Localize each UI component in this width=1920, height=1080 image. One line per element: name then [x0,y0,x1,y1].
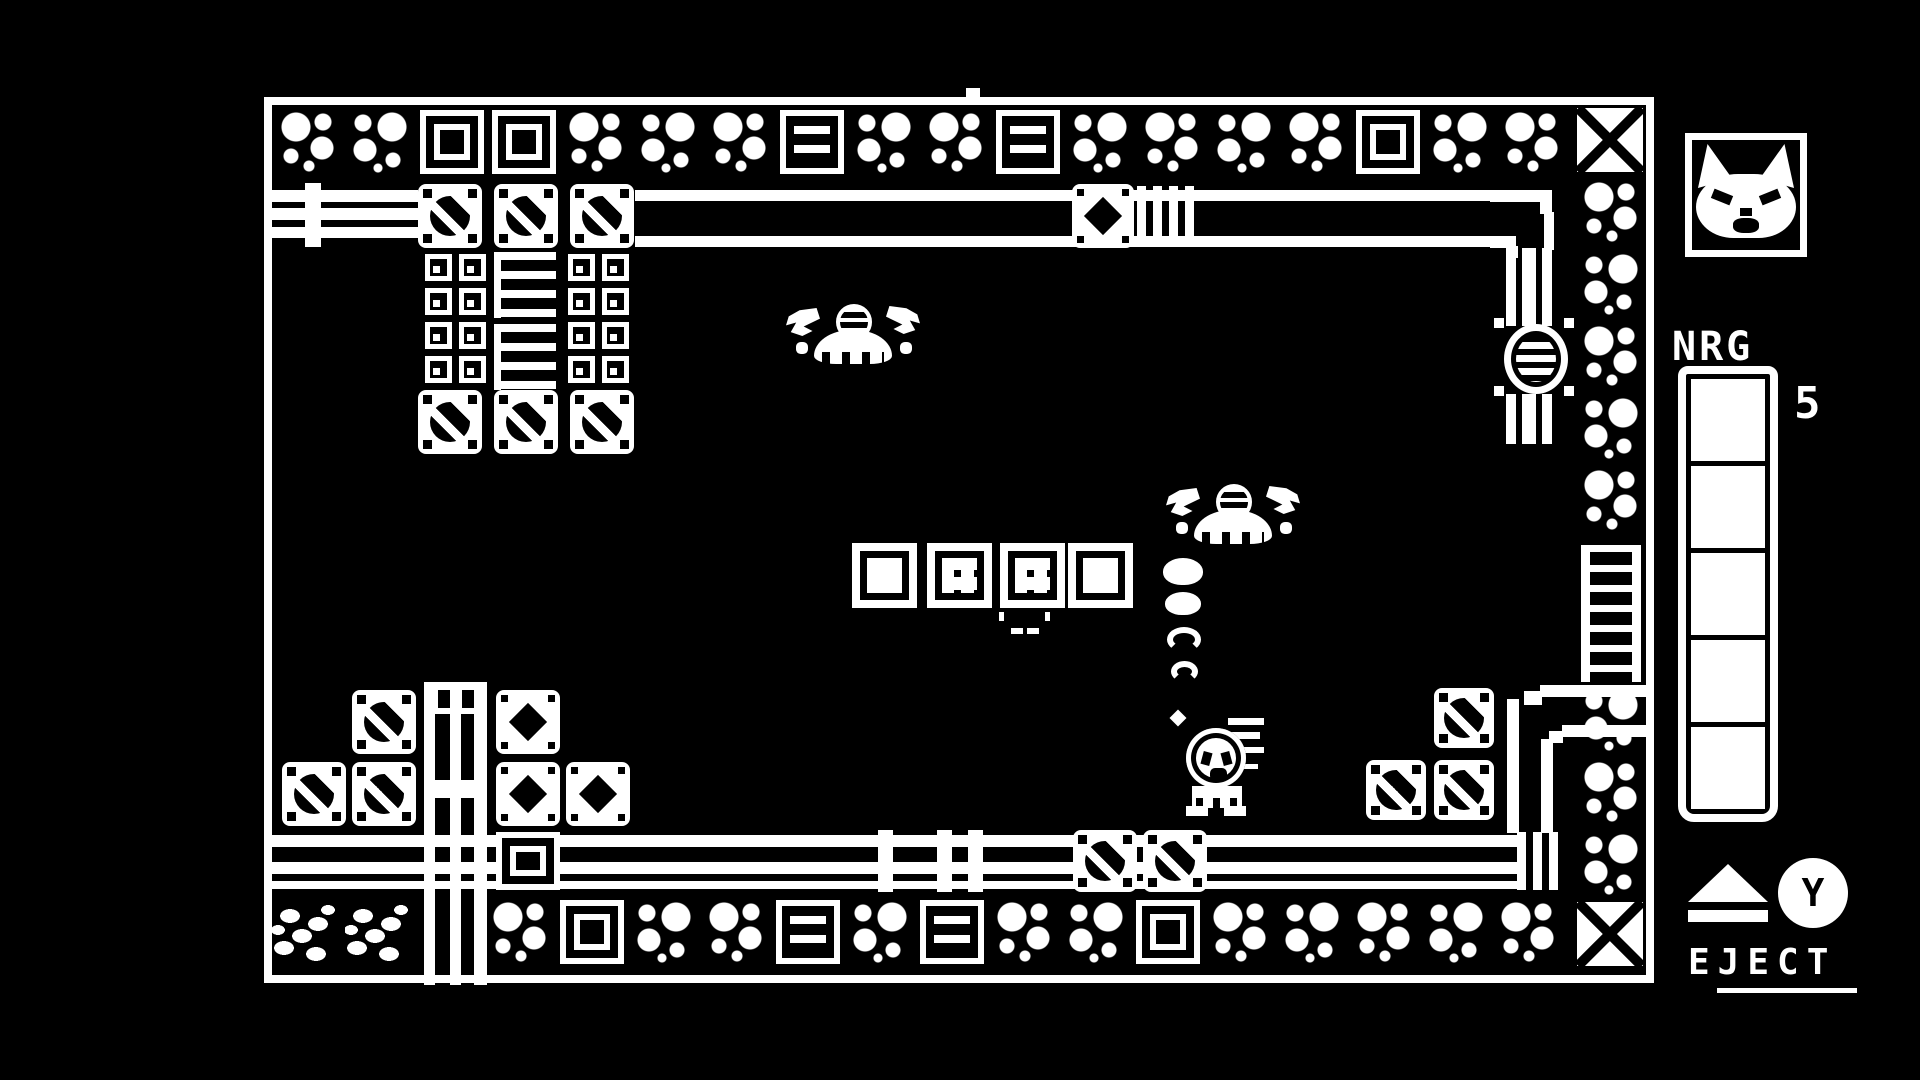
slat-tile [920,900,984,964]
bubble-a-tile [1496,900,1560,964]
screw-block [282,762,346,826]
coupling-block [937,830,952,892]
eject-base-icon [1688,910,1768,922]
bubble-b-tile [848,900,912,964]
pebble-tile [345,902,417,968]
smallsq-block [568,322,595,349]
crate-block [1068,543,1133,608]
smallsq-block [602,356,629,383]
vstripe-block [494,252,556,318]
bubble-a-tile [276,110,340,174]
plated-block [566,762,630,826]
screw-block [1434,760,1494,820]
ladder-block [1581,545,1641,682]
screw-block [570,390,634,454]
ribbed-block [1517,832,1563,890]
enemy-claw-icon [786,308,820,336]
bubble-b-tile [1579,396,1643,460]
tick-block [1045,612,1050,621]
valve-bracket [1494,386,1504,396]
bubble-b-tile [1424,900,1488,964]
crateb-block [927,543,992,608]
bubble-a-tile [924,110,988,174]
slat-tile [780,110,844,174]
dash-block [1027,628,1039,634]
plated-block [1072,184,1134,248]
enemy-claw-icon [886,306,920,334]
energy-value: 5 [1794,378,1821,429]
player-mech [1186,710,1296,820]
smallsq-block [459,288,486,315]
enemy-shell [1194,510,1272,544]
tile-layer [0,0,1920,1080]
eject-underline [1717,988,1857,993]
mech-body [1192,786,1242,808]
crateb-block [1000,543,1065,608]
smallsq-block [568,254,595,281]
bubble-a-tile [708,110,772,174]
coupling-block [878,830,893,892]
bubble-a-tile [1208,900,1272,964]
bubble-a-tile [1579,324,1643,388]
bubble-b-tile [632,900,696,964]
smoke-puff [1163,558,1203,585]
enemy-flying-crab [1166,484,1300,546]
bubble-a-tile [488,900,552,964]
mech-foot [1224,806,1246,816]
plate-tile [1136,900,1200,964]
bubble-a-tile [1500,110,1564,174]
y-button-label: Y [1802,871,1825,915]
corner-x-tile [1577,902,1643,966]
dash-block [1011,628,1023,634]
bubble-b-tile [636,110,700,174]
nrg-label: NRG [1672,324,1753,370]
screw-block [1366,760,1426,820]
smallsq-block [425,356,452,383]
screw-block [1434,688,1494,748]
smallsq-block [459,322,486,349]
smoke-puff [1171,661,1198,682]
smallsq-block [425,254,452,281]
slat-tile [776,900,840,964]
bubble-a-tile [1579,468,1643,532]
bubble-a-tile [992,900,1056,964]
energy-segment [1691,466,1765,548]
y-button-icon: Y [1778,858,1848,928]
smallsq-block [459,254,486,281]
plate-tile [560,900,624,964]
bubble-a-tile [1284,110,1348,174]
bubble-b-tile [1579,252,1643,316]
bubble-a-tile [1579,760,1643,824]
bubble-b-tile [852,110,916,174]
tick-block [999,612,1004,621]
coupling-block [968,830,983,892]
screw-block [1073,830,1137,892]
screw-block [418,390,482,454]
plate-tile [420,110,484,174]
smallsq-block [425,322,452,349]
bubble-b-tile [348,110,412,174]
plate-block [496,832,560,890]
bubble-b-tile [1212,110,1276,174]
smallsq-block [602,254,629,281]
bubble-a-tile [1140,110,1204,174]
ribbed-block [1137,186,1201,246]
smallsq-block [568,288,595,315]
bubble-a-tile [1579,180,1643,244]
corner-x-tile [1577,108,1643,172]
motion-line [1244,764,1258,769]
bubble-a-tile [704,900,768,964]
valve-bracket [1564,318,1574,328]
enemy-foot [1280,522,1292,534]
enemy-shell [814,330,892,364]
smoke-puff [1167,627,1201,652]
enemy-foot [900,342,912,354]
energy-segment [1691,640,1765,722]
bubble-b-tile [1579,688,1643,752]
screw-block [1143,830,1207,892]
screw-block [418,184,482,248]
bubble-b-tile [1280,900,1344,964]
cat-mouth-icon [1733,218,1759,233]
plated-block [496,690,560,754]
vstripe-block [494,324,556,390]
bubble-b-tile [1064,900,1128,964]
mech-foot [1186,806,1208,816]
valve-bracket [1564,386,1574,396]
bubble-a-tile [1352,900,1416,964]
valve-bracket [1494,318,1504,328]
bubble-a-tile [564,110,628,174]
pebble-tile [272,902,344,968]
eject-label: EJECT [1688,942,1836,983]
energy-segment [1691,727,1765,809]
bubble-b-tile [1068,110,1132,174]
smallsq-block [568,356,595,383]
door-marker [966,88,980,98]
smallsq-block [425,288,452,315]
enemy-claw-icon [1166,488,1200,516]
cat-face-icon [1692,140,1800,250]
enemy-foot [1176,522,1188,534]
crate-block [852,543,917,608]
smoke-dot [1170,710,1187,727]
smallsq-block [602,288,629,315]
energy-bar [1678,366,1778,822]
bubble-b-tile [1579,832,1643,896]
smoke-puff [1165,592,1201,615]
slat-tile [996,110,1060,174]
smallsq-block [602,322,629,349]
pilot-portrait [1685,133,1807,257]
energy-segment [1691,379,1765,461]
cat-mouth-icon [1210,768,1227,781]
plated-block [496,762,560,826]
plate-tile [492,110,556,174]
screw-block [570,184,634,248]
motion-line [1228,718,1264,725]
coupling-block [305,183,321,247]
enemy-claw-icon [1266,486,1300,514]
enemy-foot [796,342,808,354]
game-screen: NRG 5 Y EJECT [0,0,1920,1080]
energy-segment [1691,553,1765,635]
screw-block [352,690,416,754]
screw-block [494,390,558,454]
bubble-b-tile [1428,110,1492,174]
screw-block [352,762,416,826]
cat-nose-icon [1740,208,1752,216]
plate-tile [1356,110,1420,174]
smallsq-block [459,356,486,383]
screw-block [494,184,558,248]
enemy-flying-crab [786,304,920,366]
